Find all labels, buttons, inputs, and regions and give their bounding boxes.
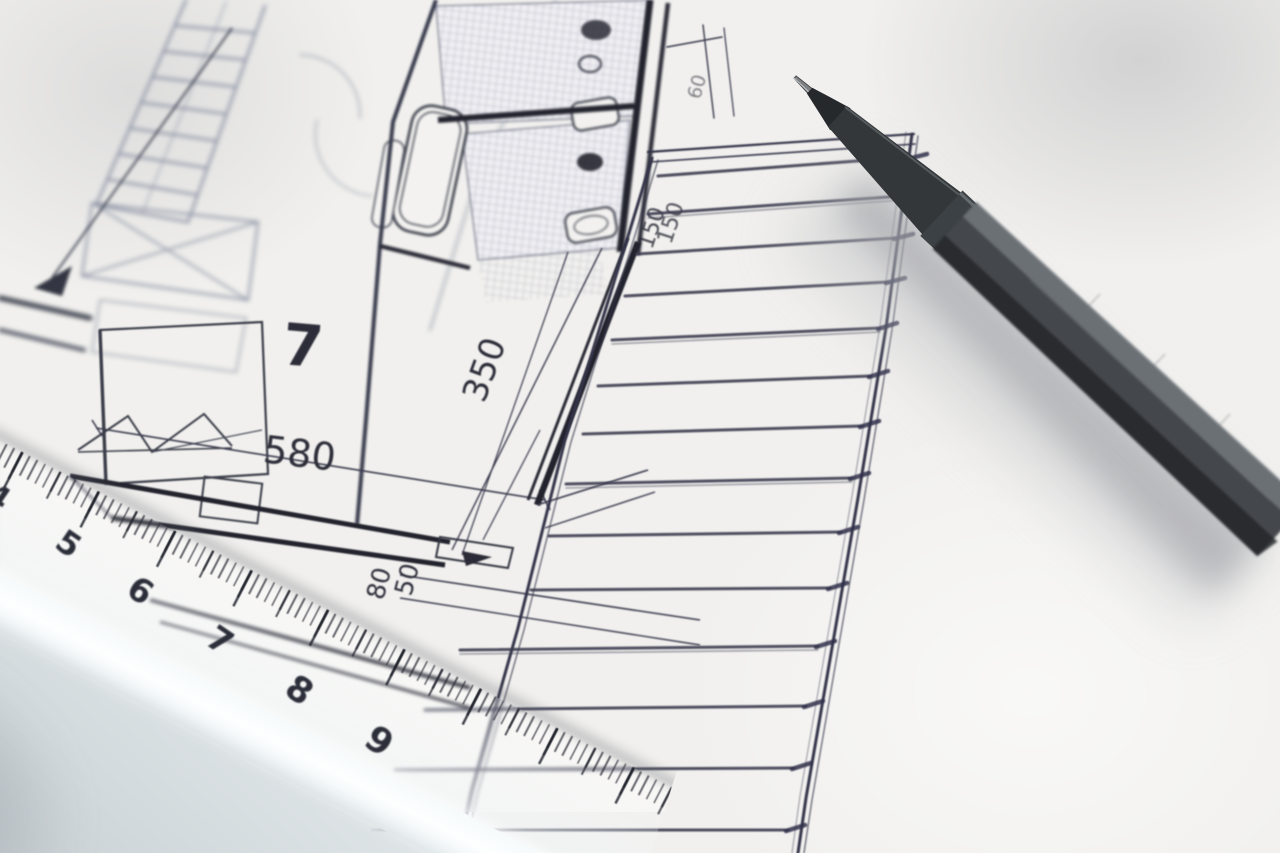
- dim-50-label: 50: [389, 560, 425, 598]
- room-number-label: 7: [280, 310, 326, 381]
- dim-350-label: 350: [455, 332, 515, 407]
- stair-direction-arrow: [34, 28, 232, 296]
- toilet: [581, 20, 611, 40]
- dim-580-label: 580: [261, 427, 338, 480]
- dim-60-label: 60: [684, 72, 712, 101]
- photo-scene: 7 580 350 80: [0, 0, 1280, 853]
- dim-150-lower-label: 150: [653, 199, 690, 247]
- wall: [380, 246, 470, 268]
- pen-shadow: [780, 156, 1272, 625]
- bidet: [577, 153, 603, 171]
- bed: [100, 322, 268, 484]
- wall: [357, 0, 436, 525]
- bathtub: [389, 102, 470, 239]
